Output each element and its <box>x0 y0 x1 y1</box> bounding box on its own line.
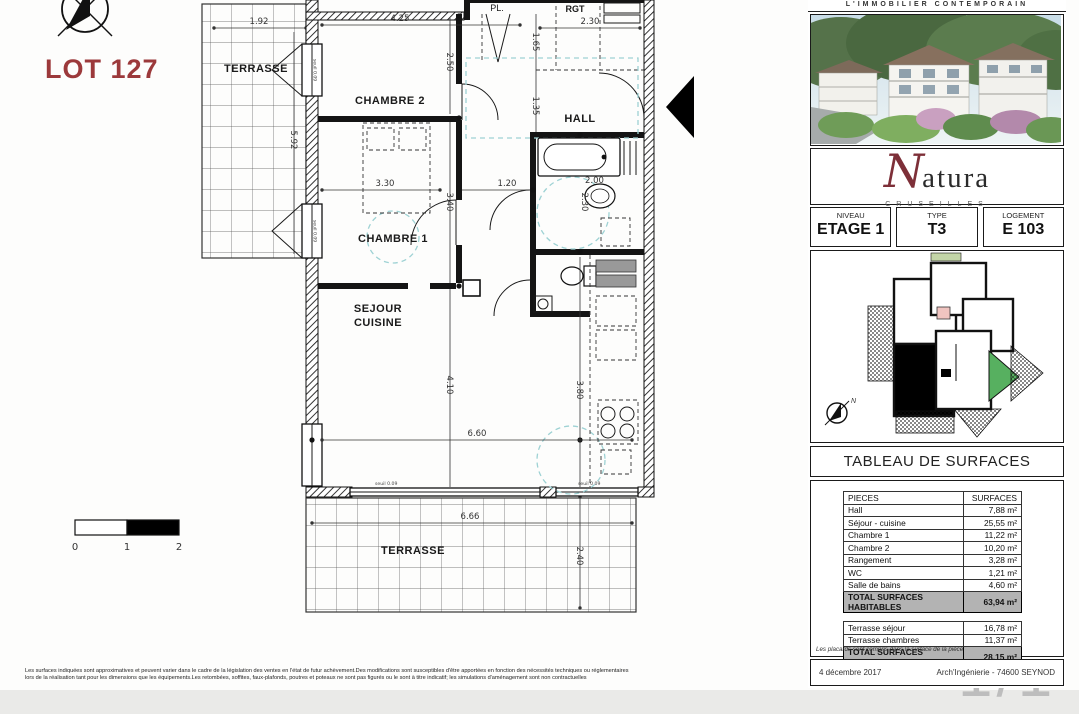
dim-hall-2: 1.35 <box>530 97 540 116</box>
dim-seuil-1: seuil 0.09 <box>312 59 318 81</box>
table-row: Séjour - cuisine 25,55 m² <box>844 517 1022 530</box>
table-header-row: PIECES SURFACES <box>844 492 1022 505</box>
floor-plan: .dim{font:8.5px "DejaVu Sans",sans-serif… <box>0 0 800 690</box>
table-row: WC 1,21 m² <box>844 567 1022 580</box>
row-terrasse-sejour-label: Terrasse séjour <box>844 622 964 635</box>
north-compass-icon <box>58 0 112 36</box>
dim-cuisine-height: 3.80 <box>574 381 584 400</box>
entrance-arrow-icon <box>666 76 694 138</box>
row-chambre2-value: 10,20 m² <box>964 542 1022 555</box>
footer-date: 4 décembre 2017 <box>819 668 881 677</box>
dim-hall-1: 1.65 <box>530 33 540 52</box>
col-header-pieces: PIECES <box>844 492 964 505</box>
dim-terrace-width: 1.92 <box>250 17 269 27</box>
keyplan-footprint <box>868 253 1043 437</box>
surfaces-table: PIECES SURFACES Hall 7,88 m² Séjour - cu… <box>843 491 1022 668</box>
unit-info-row: NIVEAU ETAGE 1 TYPE T3 LOGEMENT E 103 <box>810 207 1064 247</box>
dim-chambre1-width: 3.30 <box>376 179 395 189</box>
table-row: Hall 7,88 m² <box>844 504 1022 517</box>
info-label-niveau: NIVEAU <box>811 211 890 220</box>
row-chambre1-label: Chambre 1 <box>844 529 964 542</box>
brand-name-rest: atura <box>922 162 990 194</box>
dim-seuil-4: seuil 0.09 <box>578 481 600 487</box>
room-label-chambre2: CHAMBRE 2 <box>355 95 425 107</box>
info-value-logement: E 103 <box>984 221 1063 239</box>
brand-initial: N <box>884 144 924 198</box>
scale-2: 2 <box>176 542 182 553</box>
row-chambre2-label: Chambre 2 <box>844 542 964 555</box>
row-wc-label: WC <box>844 567 964 580</box>
total-habitables-value: 63,94 m² <box>964 592 1022 613</box>
exterior-walls <box>306 0 654 497</box>
brand-logo: Natura CRUSEILLES <box>810 148 1064 205</box>
dim-seuil-3: seuil 0.09 <box>375 481 397 487</box>
dim-terrasse-bottom-width: 6.66 <box>461 512 480 522</box>
info-box-niveau: NIVEAU ETAGE 1 <box>810 207 891 247</box>
footer-bar: 4 décembre 2017 Arch'Ingénierie - 74600 … <box>810 659 1064 686</box>
dim-chambre1-height: 3.40 <box>444 193 454 212</box>
dim-chambre2-width: 4.25 <box>391 14 410 24</box>
info-value-niveau: ETAGE 1 <box>811 221 890 239</box>
row-terrasse-sejour-value: 16,78 m² <box>964 622 1022 635</box>
table-row: Chambre 2 10,20 m² <box>844 542 1022 555</box>
info-label-type: TYPE <box>897 211 976 220</box>
row-chambre1-value: 11,22 m² <box>964 529 1022 542</box>
table-row: Rangement 3,28 m² <box>844 554 1022 567</box>
table-gap <box>844 613 1022 622</box>
row-hall-value: 7,88 m² <box>964 504 1022 517</box>
tagline-rule <box>808 11 1066 12</box>
footer-firm: Arch'Ingénierie - 74600 SEYNOD <box>937 668 1055 677</box>
table-row: Terrasse séjour 16,78 m² <box>844 622 1022 635</box>
info-box-type: TYPE T3 <box>896 207 977 247</box>
scale-0: 0 <box>72 542 78 553</box>
surfaces-title: TABLEAU DE SURFACES <box>810 446 1064 477</box>
info-value-type: T3 <box>897 221 976 239</box>
info-panel: L'IMMOBILIER CONTEMPORAIN <box>808 0 1066 688</box>
total-habitables-row: TOTAL SURFACES HABITABLES 63,94 m² <box>844 592 1022 613</box>
row-sdb-value: 4,60 m² <box>964 579 1022 592</box>
room-label-rgt: RGT <box>566 4 586 14</box>
row-sdb-label: Salle de bains <box>844 579 964 592</box>
room-label-hall: HALL <box>564 113 595 125</box>
key-plan: N <box>810 250 1064 443</box>
total-habitables-label: TOTAL SURFACES HABITABLES <box>844 592 964 613</box>
disclaimer-line-1: Les surfaces indiquées sont approximativ… <box>25 668 770 675</box>
building-photo <box>810 14 1064 146</box>
dim-seuil-2: seuil 0.09 <box>312 220 318 242</box>
room-label-chambre1: CHAMBRE 1 <box>358 233 428 245</box>
closets <box>482 3 644 70</box>
info-box-logement: LOGEMENT E 103 <box>983 207 1064 247</box>
dim-hall-width: 1.20 <box>498 179 517 189</box>
table-row: Chambre 1 11,22 m² <box>844 529 1022 542</box>
disclaimer-line-2: lors de la réalisation tant pour les dim… <box>25 675 770 682</box>
bathtub <box>538 138 636 176</box>
keyplan-compass-icon: N <box>825 398 857 425</box>
dim-sejour-width: 6.60 <box>468 429 487 439</box>
keyplan-north-label: N <box>851 398 857 405</box>
washing-machine <box>601 218 630 246</box>
dim-bath-1: 2.00 <box>585 176 604 186</box>
dim-terrasse-bottom-height: 2.40 <box>574 547 584 566</box>
dim-bath-2: 2.30 <box>579 193 589 212</box>
toilet <box>561 266 596 286</box>
disclaimer-text: Les surfaces indiquées sont approximativ… <box>25 668 770 682</box>
row-hall-label: Hall <box>844 504 964 517</box>
bed <box>363 123 430 213</box>
wc-handbasin <box>534 296 552 312</box>
dim-terrace-height: 5.92 <box>288 131 298 150</box>
kitchen-counter <box>590 255 638 487</box>
row-sejour-label: Séjour - cuisine <box>844 517 964 530</box>
row-rangement-value: 3,28 m² <box>964 554 1022 567</box>
row-rangement-label: Rangement <box>844 554 964 567</box>
col-header-surfaces: SURFACES <box>964 492 1022 505</box>
room-label-sejour: SEJOUR <box>354 303 402 315</box>
room-label-pl: PL. <box>490 3 504 13</box>
room-label-cuisine: CUISINE <box>354 317 402 329</box>
row-sejour-value: 25,55 m² <box>964 517 1022 530</box>
table-row: Salle de bains 4,60 m² <box>844 579 1022 592</box>
surfaces-table-box: PIECES SURFACES Hall 7,88 m² Séjour - cu… <box>810 480 1064 657</box>
dim-sejour-height: 4.10 <box>444 376 454 395</box>
table-row: Terrasse chambres 11,37 m² <box>844 634 1022 647</box>
row-terrasse-chambres-label: Terrasse chambres <box>844 634 964 647</box>
brand-tagline: L'IMMOBILIER CONTEMPORAIN <box>808 1 1066 8</box>
row-terrasse-chambres-value: 11,37 m² <box>964 634 1022 647</box>
scale-bar: 0 1 2 <box>72 520 182 553</box>
dim-rgt-width: 2.30 <box>581 17 600 27</box>
dim-chambre2-height: 2.50 <box>444 53 454 72</box>
room-label-terrasse-bottom: TERRASSE <box>381 545 445 557</box>
row-wc-value: 1,21 m² <box>964 567 1022 580</box>
lot-number: LOT 127 <box>45 54 159 84</box>
table-note: Les placards sont compris dans la surfac… <box>816 646 963 653</box>
page-bottom-strip <box>0 690 1079 714</box>
scale-1: 1 <box>124 542 130 553</box>
info-label-logement: LOGEMENT <box>984 211 1063 220</box>
